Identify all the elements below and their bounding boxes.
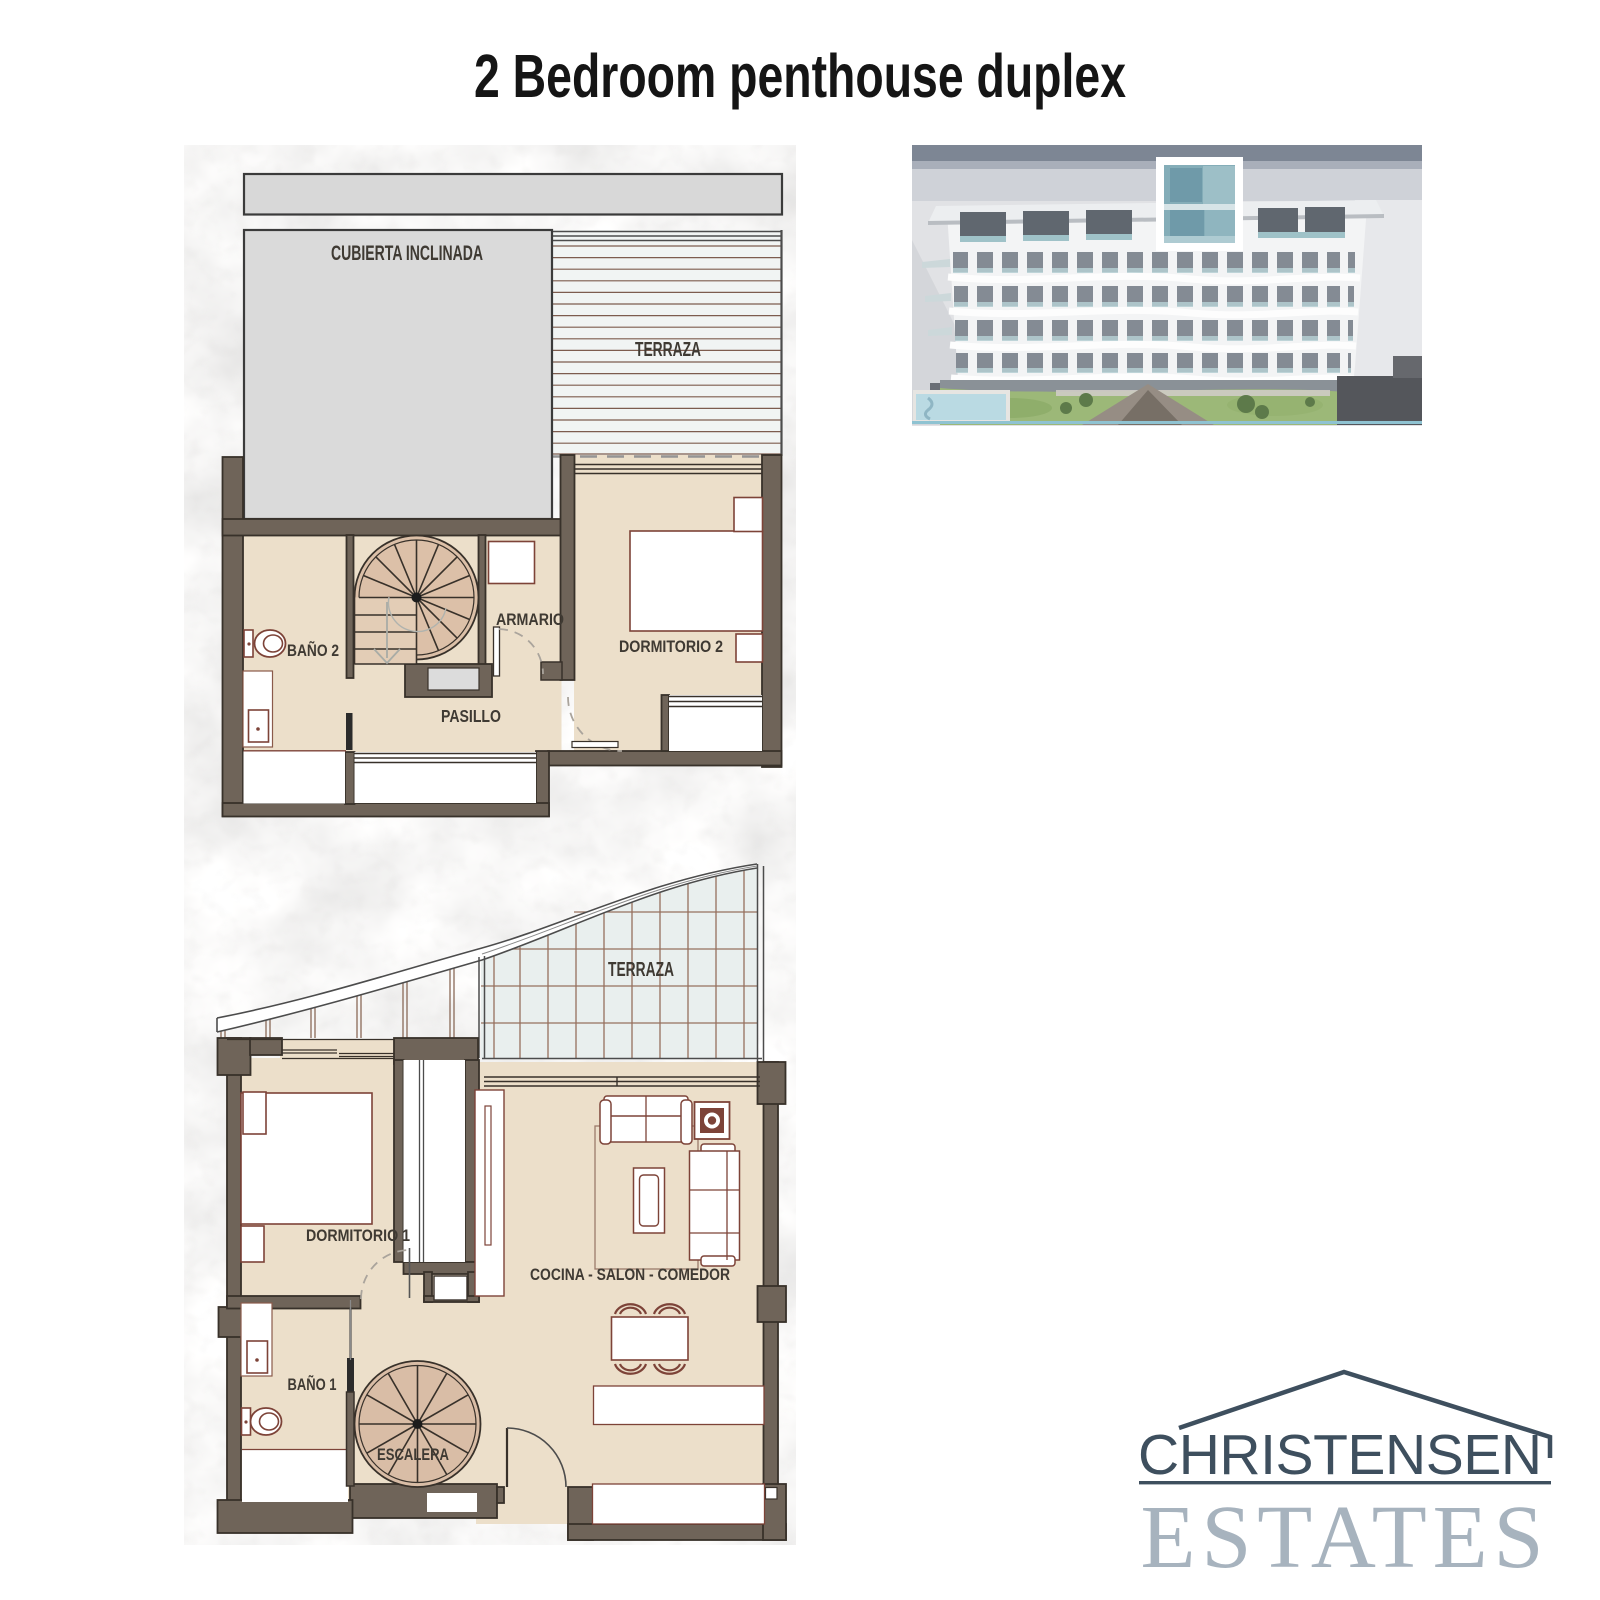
svg-text:COCINA - SALON - COMEDOR: COCINA - SALON - COMEDOR (530, 1266, 730, 1284)
svg-text:DORMITORIO 1: DORMITORIO 1 (306, 1227, 410, 1245)
svg-text:DORMITORIO 2: DORMITORIO 2 (619, 638, 723, 656)
svg-text:ESTATES: ESTATES (1141, 1488, 1544, 1587)
svg-text:CHRISTENSEN: CHRISTENSEN (1138, 1423, 1542, 1487)
svg-text:PASILLO: PASILLO (441, 706, 501, 726)
svg-text:ARMARIO: ARMARIO (496, 611, 564, 629)
svg-text:2 Bedroom penthouse duplex: 2 Bedroom penthouse duplex (474, 42, 1126, 110)
svg-text:BAÑO 1: BAÑO 1 (288, 1374, 337, 1394)
svg-text:TERRAZA: TERRAZA (608, 958, 674, 981)
svg-text:BAÑO 2: BAÑO 2 (287, 640, 339, 660)
svg-text:ESCALERA: ESCALERA (377, 1446, 449, 1464)
svg-text:CUBIERTA INCLINADA: CUBIERTA INCLINADA (331, 241, 483, 265)
svg-text:TERRAZA: TERRAZA (635, 339, 701, 361)
